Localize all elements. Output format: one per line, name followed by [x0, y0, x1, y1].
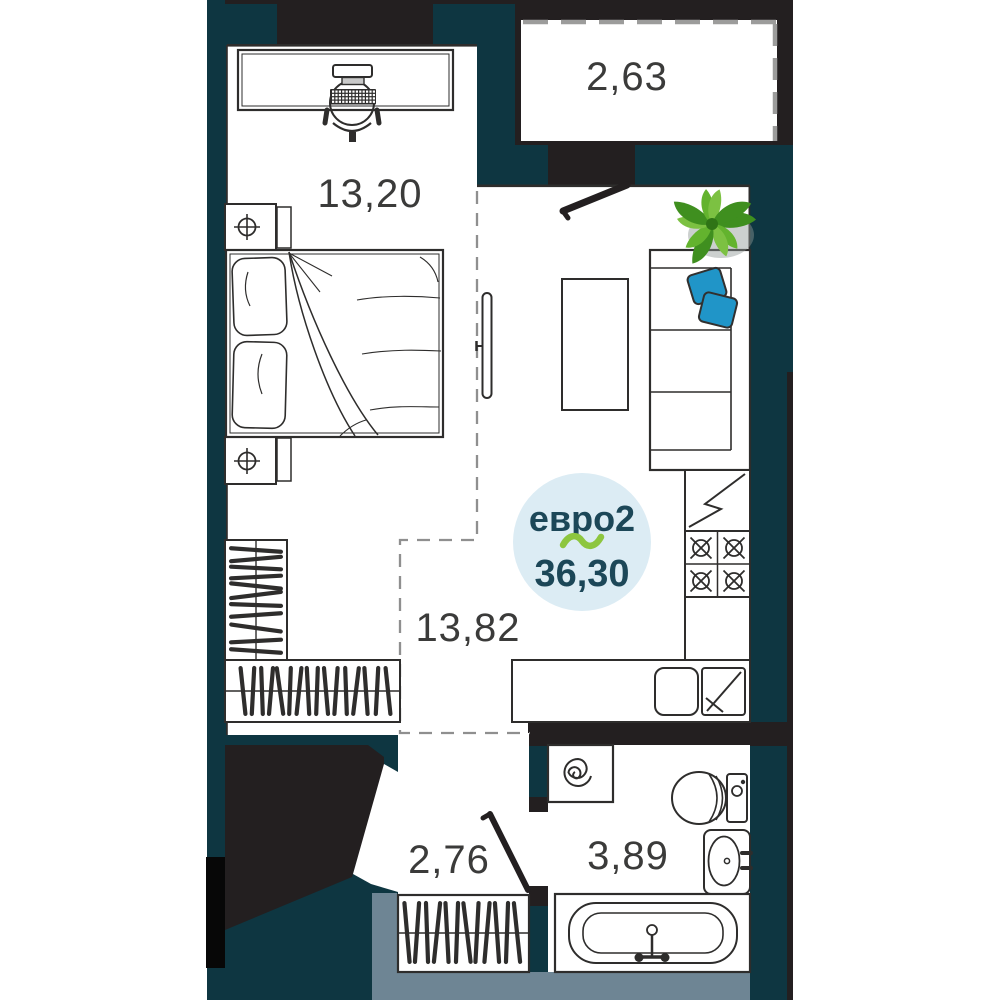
wall-bathdoor-stub-bottom [528, 886, 548, 906]
floorplan-page: евро2 36,30 2,63 13,20 13,82 2,76 3,89 [0, 0, 1000, 1000]
badge-layout-type: евро2 [529, 498, 635, 539]
sofa-icon [650, 250, 750, 470]
floorplan-svg: евро2 36,30 2,63 13,20 13,82 2,76 3,89 [0, 0, 1000, 1000]
wall-balcony-door-stub [548, 143, 635, 187]
outer-wall-right [787, 372, 793, 1000]
slate-strip-vertical [372, 893, 397, 1000]
kitchen-counter-bottom [512, 660, 750, 722]
bedroom-top-wall-line [227, 44, 477, 47]
bathtub-icon [555, 894, 750, 972]
wall-kitchen-bottom [528, 722, 793, 746]
keyboard-icon [330, 89, 376, 105]
wardrobe-hallway [398, 895, 529, 972]
nightstand-bottom [225, 437, 291, 484]
hallway-area-label: 2,76 [408, 838, 490, 882]
kitchen-living-area-label: 13,82 [415, 606, 520, 650]
bedroom-area-label: 13,20 [317, 172, 422, 216]
fridge-icon [685, 470, 750, 531]
bathroom-doorway [528, 812, 548, 886]
wall-above-bedroom [277, 0, 433, 47]
balcony-bottom-line [521, 141, 777, 144]
stove-icon [685, 531, 750, 597]
balcony-area-label: 2,63 [586, 55, 668, 99]
coffee-table [562, 279, 628, 410]
bathroom-area-label: 3,89 [587, 834, 669, 878]
washing-machine-icon [548, 745, 613, 802]
toilet-icon [672, 772, 747, 824]
slate-strip-bottom [397, 972, 750, 1000]
nightstand-top [225, 204, 291, 250]
area-badge: евро2 36,30 [513, 473, 651, 611]
wall-entrance-column [206, 857, 225, 968]
kitchen-counter-side [685, 597, 750, 660]
badge-total-area: 36,30 [534, 553, 629, 595]
bathroom-sink-icon [704, 830, 753, 894]
bed-icon [226, 250, 443, 437]
wall-bathdoor-stub-top [528, 797, 548, 812]
